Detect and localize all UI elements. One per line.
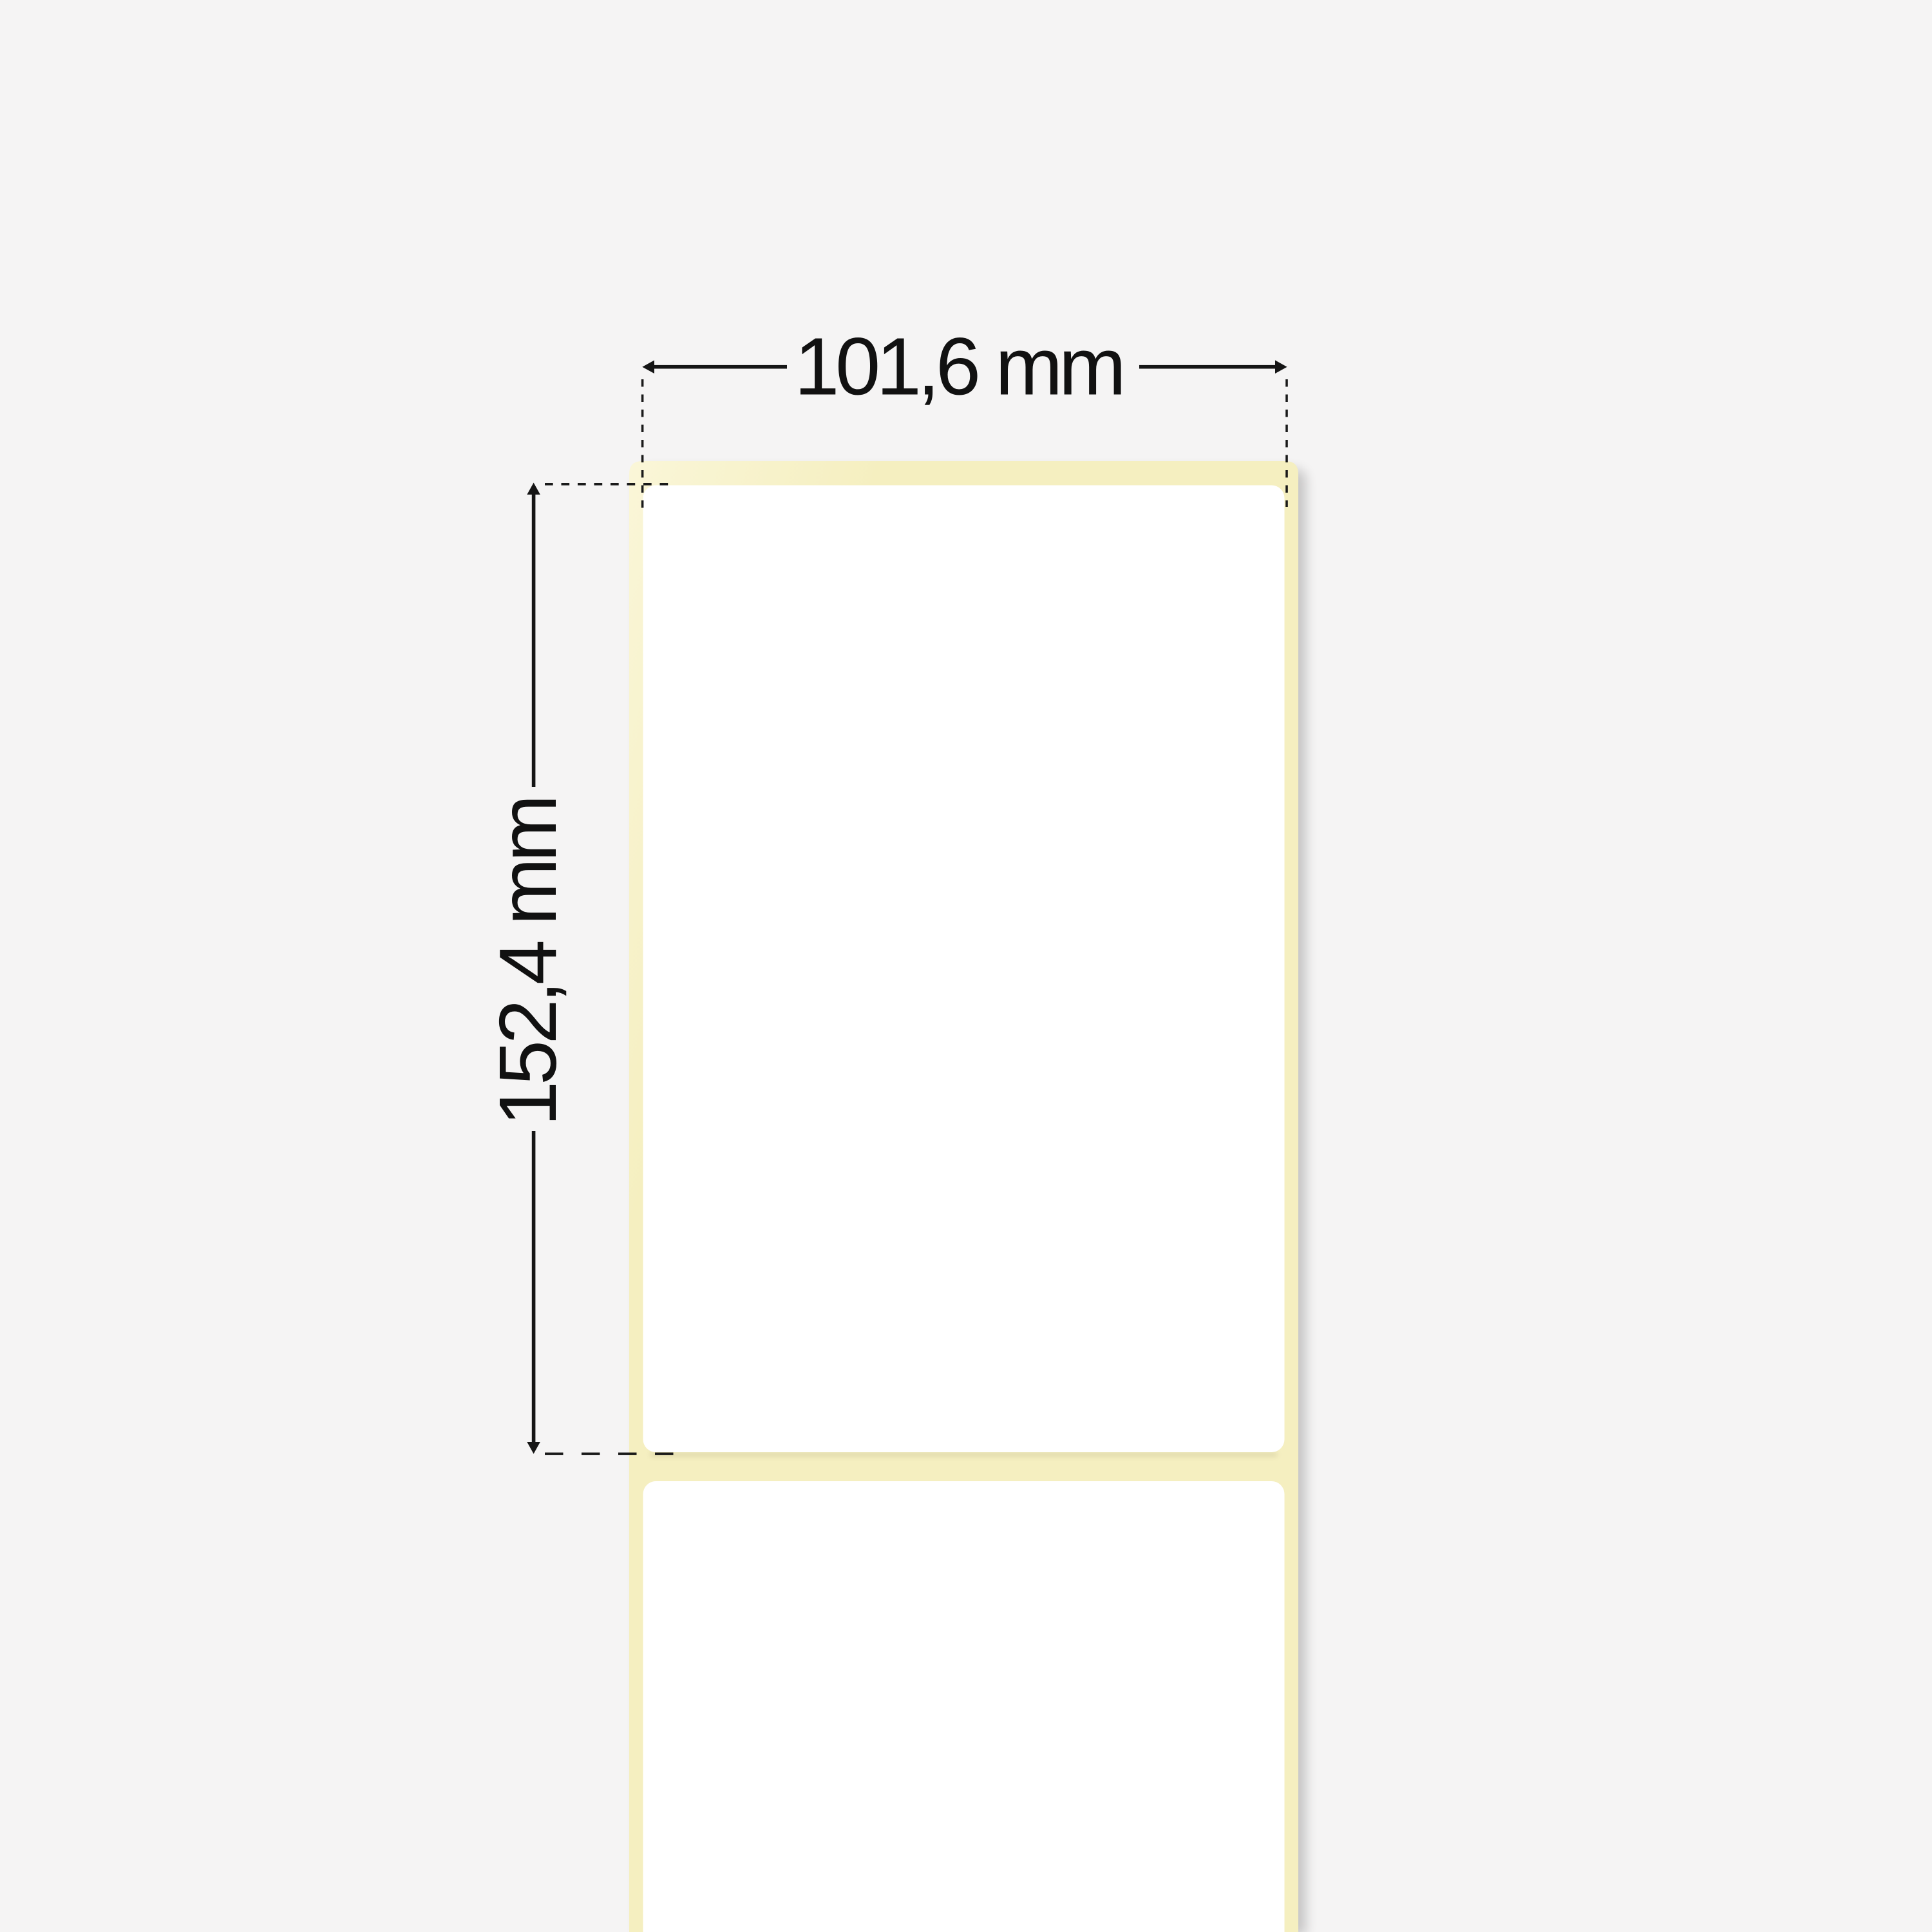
svg-text:101,6 mm: 101,6 mm xyxy=(794,321,1122,412)
svg-text:152,4 mm: 152,4 mm xyxy=(482,799,573,1126)
